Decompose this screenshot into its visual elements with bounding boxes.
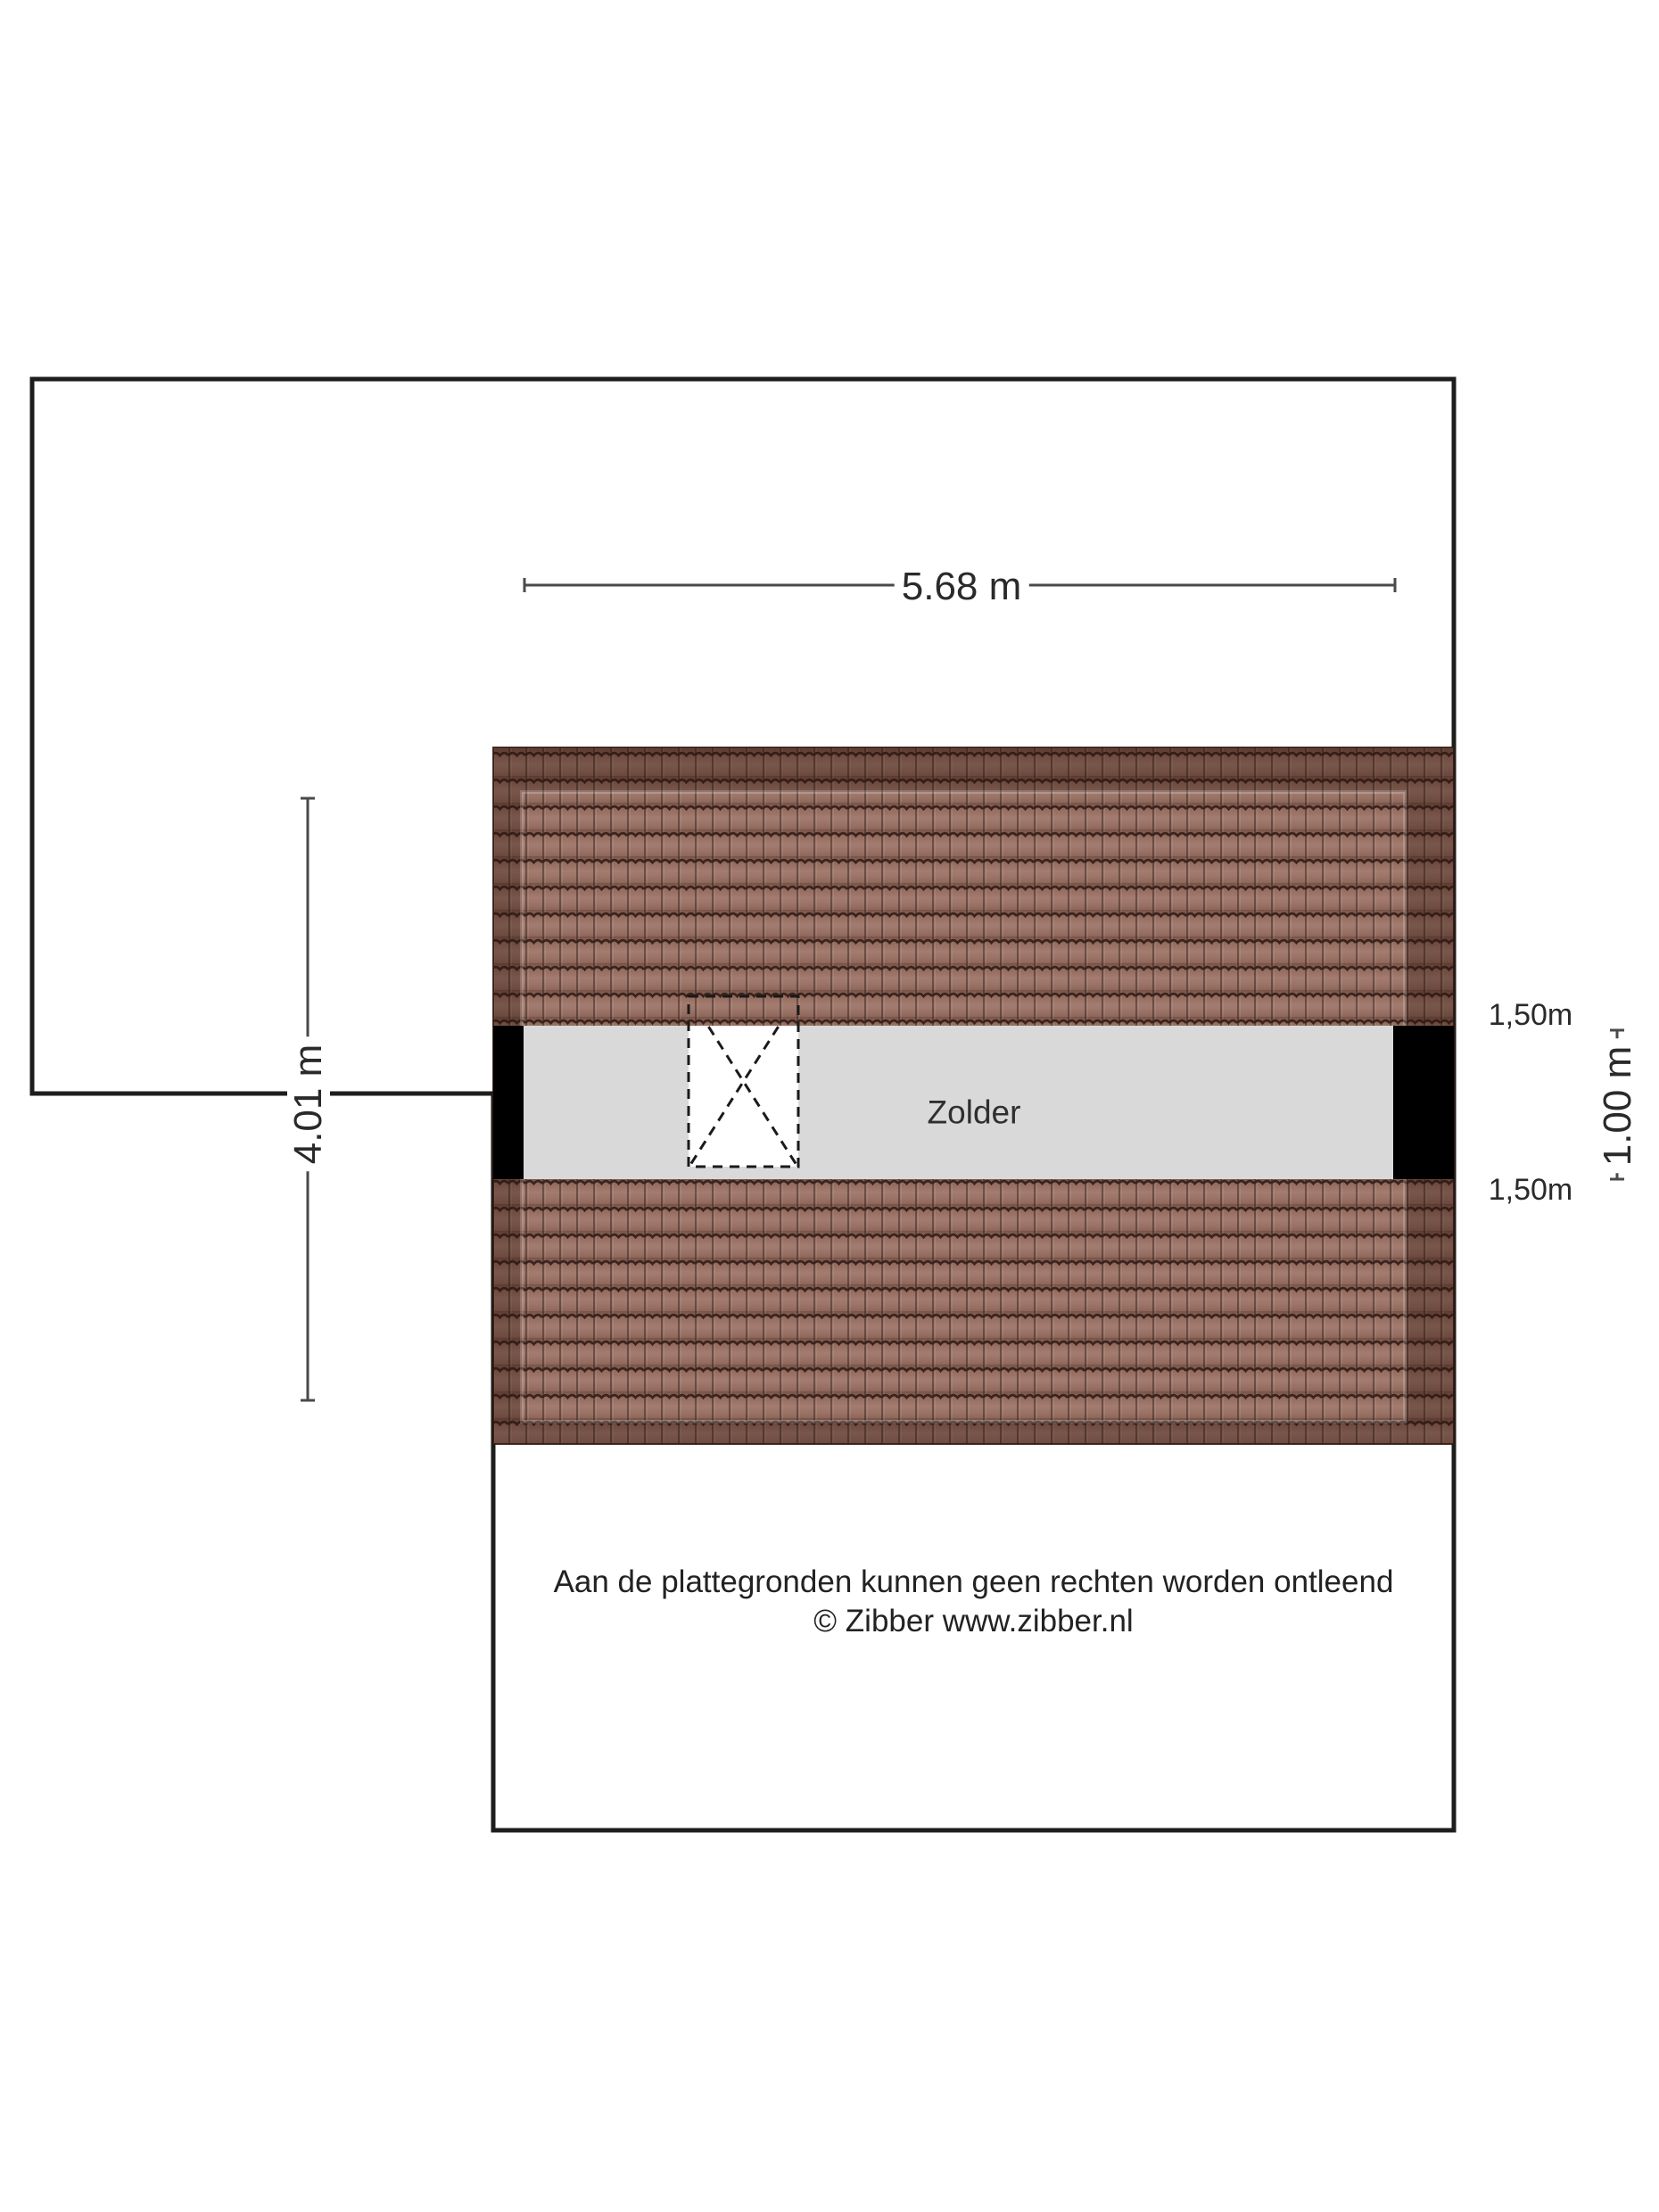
knee-wall-bottom-label: 1,50m xyxy=(1489,1175,1573,1205)
width-dimension-label: 5.68 m xyxy=(895,565,1029,608)
footer-disclaimer: Aan de plattegronden kunnen geen rechten… xyxy=(493,1563,1454,1602)
depth-dimension-label: 4.01 m xyxy=(287,1037,330,1172)
wall-left xyxy=(493,1026,524,1179)
height-dimension-label: 1.00 m xyxy=(1597,1039,1639,1174)
wall-right xyxy=(1393,1026,1454,1179)
knee-wall-top-label: 1,50m xyxy=(1489,1000,1573,1030)
floorplan-drawing xyxy=(0,0,1659,2212)
room-label: Zolder xyxy=(928,1096,1021,1129)
floorplan-page: 5.68 m 4.01 m 1.00 m 1,50m 1,50m Zolder … xyxy=(0,0,1659,2212)
footer: Aan de plattegronden kunnen geen rechten… xyxy=(493,1563,1454,1641)
footer-copyright: © Zibber www.zibber.nl xyxy=(493,1602,1454,1641)
